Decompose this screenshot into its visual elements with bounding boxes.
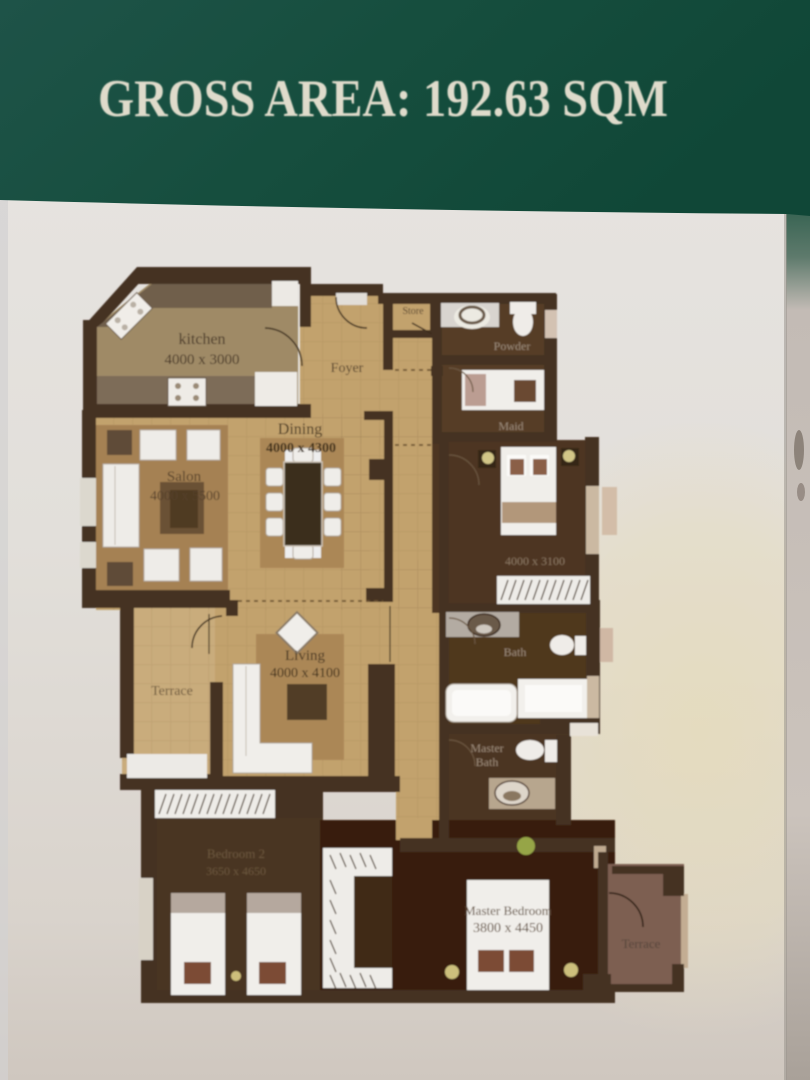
svg-text:Maid: Maid bbox=[498, 419, 523, 433]
svg-text:Salon: Salon bbox=[167, 469, 202, 485]
svg-text:Store: Store bbox=[402, 306, 424, 317]
svg-text:Bath: Bath bbox=[476, 755, 499, 769]
svg-text:kitchen: kitchen bbox=[178, 331, 225, 348]
svg-text:Terrace: Terrace bbox=[151, 684, 193, 699]
svg-text:Terrace: Terrace bbox=[622, 936, 661, 951]
svg-text:3650 x 4650: 3650 x 4650 bbox=[206, 864, 266, 878]
svg-text:4000 x 4300: 4000 x 4300 bbox=[266, 441, 336, 456]
svg-text:Powder: Powder bbox=[494, 339, 531, 353]
svg-text:Master Bedroom: Master Bedroom bbox=[464, 903, 552, 918]
svg-text:Living: Living bbox=[285, 648, 325, 664]
svg-text:4000 x 5500: 4000 x 5500 bbox=[150, 489, 220, 504]
svg-text:Bath: Bath bbox=[504, 645, 527, 659]
svg-text:Dining: Dining bbox=[278, 421, 322, 438]
svg-text:GROSS AREA: 192.63 SQM: GROSS AREA: 192.63 SQM bbox=[98, 70, 668, 128]
svg-text:3800 x 4450: 3800 x 4450 bbox=[473, 921, 543, 936]
svg-text:Master: Master bbox=[470, 741, 503, 755]
svg-text:Foyer: Foyer bbox=[331, 361, 364, 376]
svg-text:4000 x 4100: 4000 x 4100 bbox=[270, 666, 340, 681]
svg-text:Bedroom 2: Bedroom 2 bbox=[207, 846, 265, 861]
svg-text:4000 x 3100: 4000 x 3100 bbox=[505, 554, 565, 568]
svg-text:4000 x 3000: 4000 x 3000 bbox=[165, 352, 240, 368]
